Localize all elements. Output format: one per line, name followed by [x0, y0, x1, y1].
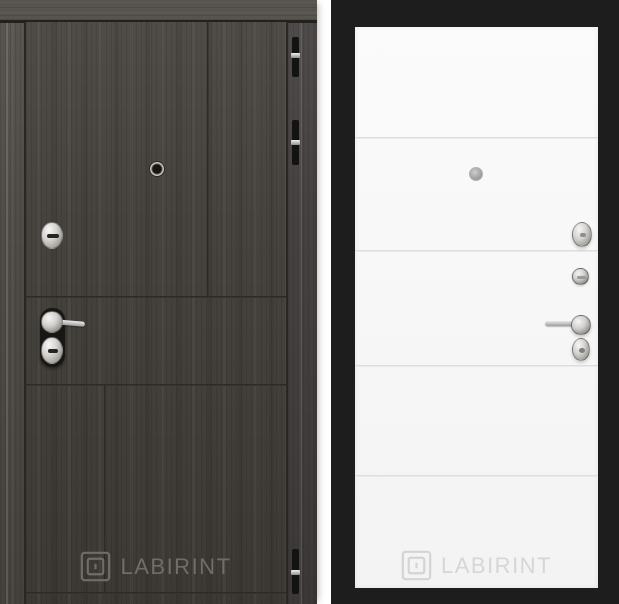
keyhole-escutcheon-icon: [41, 337, 63, 364]
right-door-leaf: LABIRINT: [355, 27, 598, 588]
keyhole-escutcheon-icon: [572, 338, 590, 361]
labyrinth-logo-icon: [80, 551, 111, 582]
leaf-groove-horizontal-3: [355, 365, 598, 367]
hinge-ring: [291, 140, 300, 145]
hinge-icon: [292, 549, 299, 594]
peephole-icon: [149, 161, 165, 177]
cylinder-lock-icon: [572, 268, 589, 285]
door-product-image: LABIRINT: [0, 0, 619, 604]
thumbturn-icon: [572, 222, 592, 247]
leaf-groove-horizontal-1: [26, 296, 286, 298]
left-door-right-casing: [288, 23, 317, 604]
casing-highlight: [301, 23, 302, 604]
hinge-ring: [291, 570, 300, 575]
cylinder-slot: [577, 276, 586, 279]
brand-watermark-text: LABIRINT: [441, 555, 552, 577]
handle-rose: [41, 311, 63, 333]
leaf-groove-horizontal-3: [26, 592, 286, 594]
leaf-groove-horizontal-1: [355, 137, 598, 139]
hinge-ring: [291, 53, 300, 58]
casing-highlight: [6, 23, 8, 604]
labyrinth-logo-icon: [401, 550, 432, 581]
left-door-left-casing: [0, 23, 24, 604]
leaf-groove-horizontal-4: [355, 475, 598, 477]
hinge-icon: [292, 120, 299, 165]
brand-watermark-text: LABIRINT: [120, 556, 231, 578]
right-door-panel: LABIRINT: [331, 0, 619, 604]
leaf-groove-vertical-top: [207, 22, 209, 296]
keyhole-slot: [48, 349, 58, 353]
knob-slot: [47, 234, 59, 238]
left-door-leaf: LABIRINT: [24, 22, 288, 604]
leaf-groove-horizontal-2: [355, 250, 598, 252]
keyhole-slot: [579, 348, 585, 353]
brand-watermark: LABIRINT: [355, 550, 598, 581]
leaf-groove-horizontal-2: [26, 384, 286, 386]
hinge-icon: [292, 37, 299, 77]
left-door-top-casing: [0, 0, 317, 20]
brand-watermark: LABIRINT: [26, 551, 286, 582]
thumbturn-slot: [580, 233, 586, 237]
peephole-icon: [469, 167, 483, 181]
left-door-panel: LABIRINT: [0, 0, 317, 604]
lock-knob-icon: [41, 222, 63, 249]
handle-rose: [571, 315, 591, 335]
